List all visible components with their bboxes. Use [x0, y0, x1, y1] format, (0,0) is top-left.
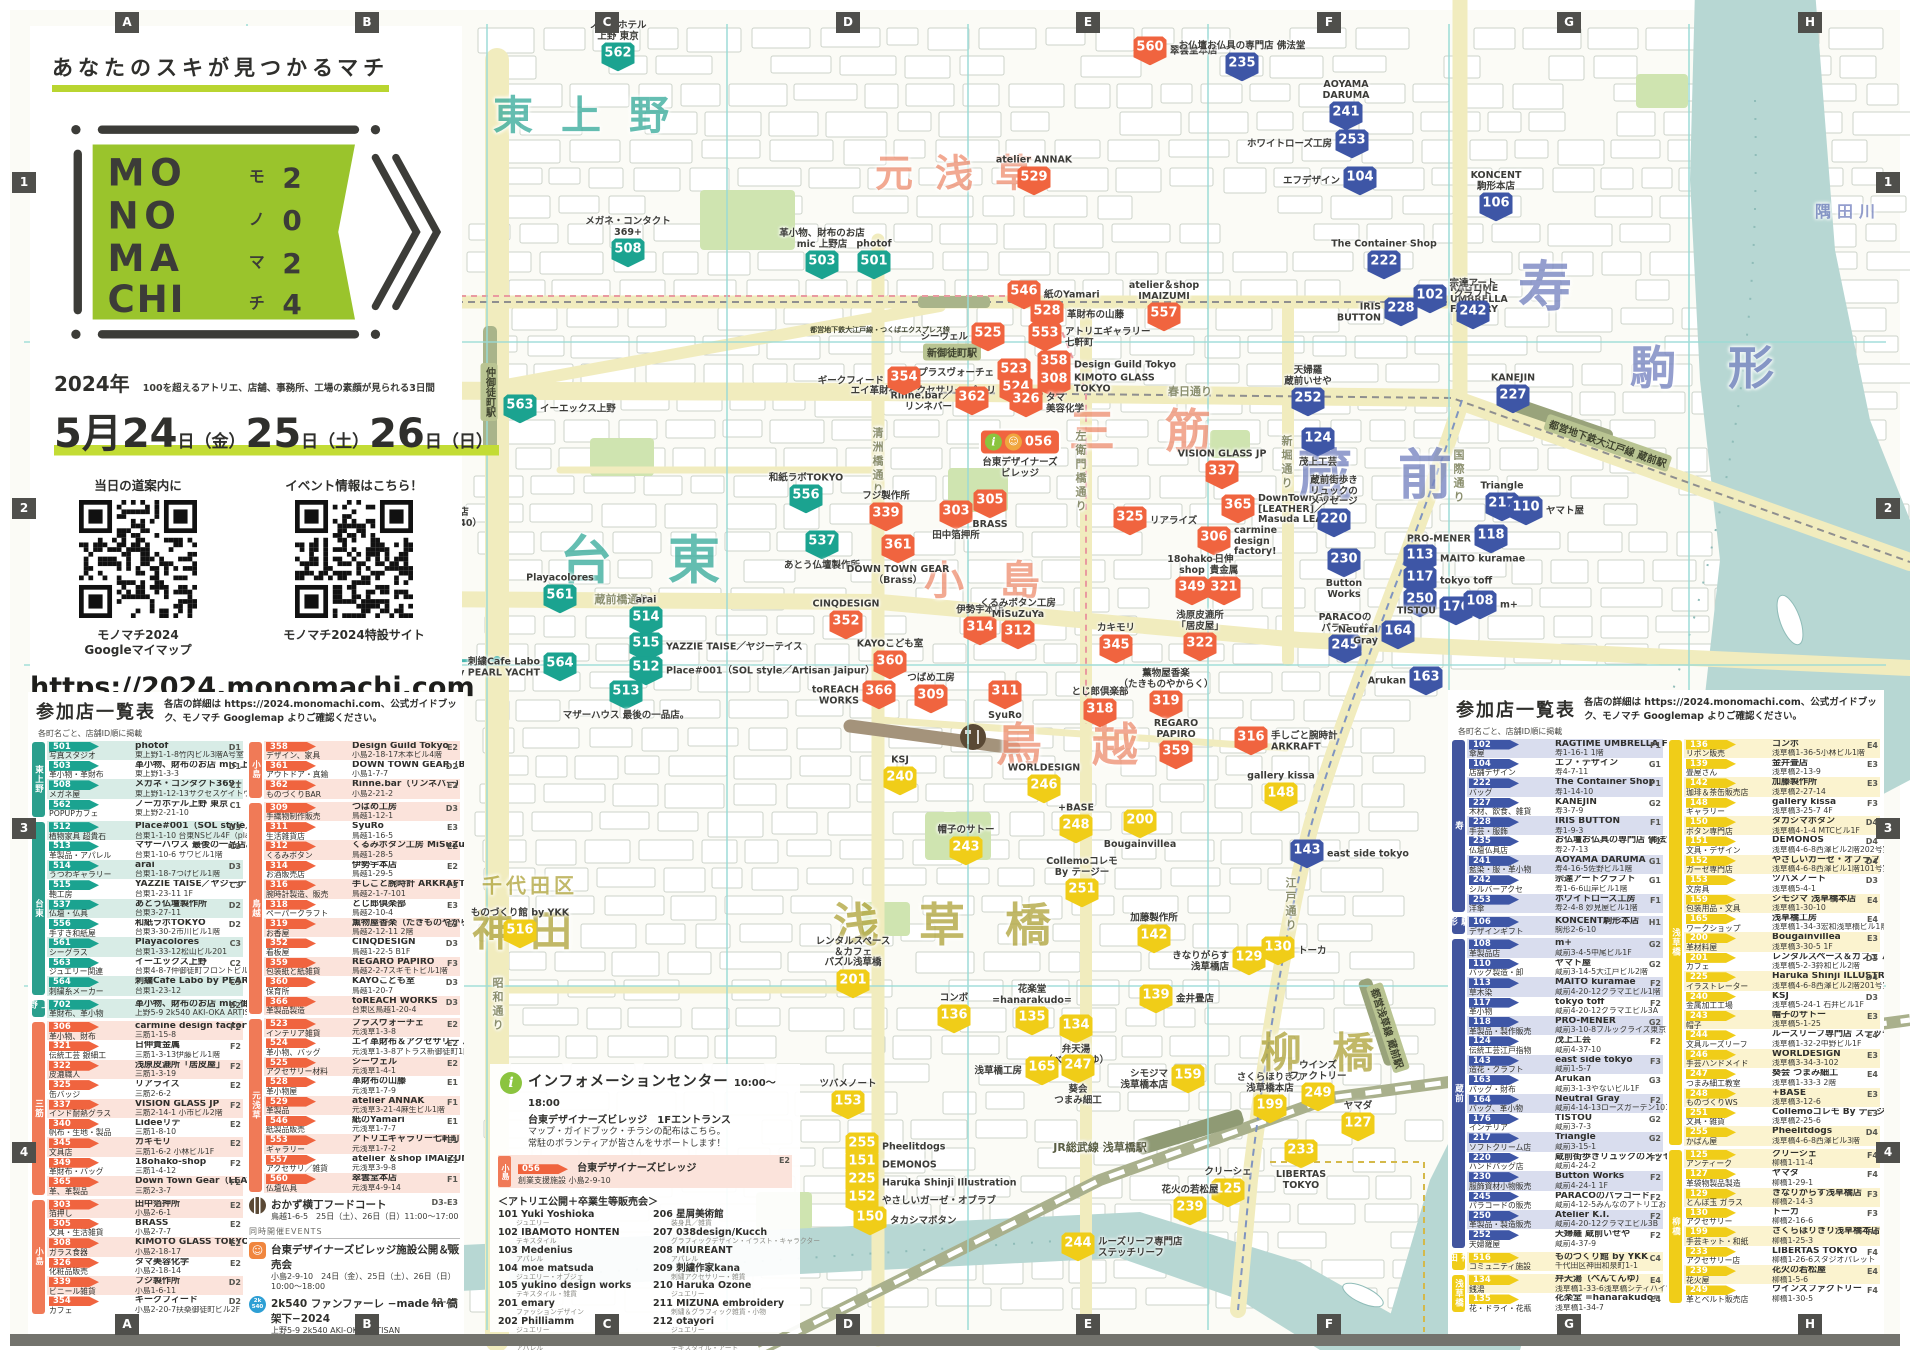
shop-grid-ref: G1 [1649, 760, 1661, 769]
shop-address: 東上野1-3-3 [135, 770, 247, 778]
shop-row-left: 241藍染・服・革小物 [1469, 856, 1553, 874]
shop-address: 浅草橋1-30-10 [1772, 904, 1884, 912]
shop-category: 花・ドライ・花瓶 [1469, 1305, 1553, 1313]
svg-text:ノ: ノ [249, 210, 265, 229]
shop-id-badge: 102 [1469, 740, 1519, 750]
shop-address: 浅草橋1-33-3 2階 [1772, 1079, 1884, 1087]
shop-address: 寿3-7-9 [1555, 807, 1667, 815]
shop-address: 浅草橋2-27-14 [1772, 788, 1884, 796]
shop-row-left: 150ボタン専門店 [1686, 817, 1770, 835]
shop-row-left: 702革財布、革小物 [49, 1000, 133, 1018]
shop-address: 台東3-27-11 [135, 909, 247, 917]
shop-category: 帽子 [1686, 1022, 1770, 1030]
shop-grid-ref: E3 [447, 920, 458, 929]
info-note-2: 常駐のボランティアが皆さんをサポートします！ [528, 1138, 792, 1150]
shop-grid-ref: D2 [229, 920, 241, 929]
shop-row-200: 200革材料屋Bougainvillea浅草橋3-30-5 1FE3 [1684, 932, 1880, 951]
shop-id-badge: 564 [49, 977, 99, 987]
shop-id-badge: 321 [49, 1041, 99, 1051]
shop-row-left: 217ソフトクリーム店 [1469, 1133, 1553, 1151]
shop-address: 浅草橋3-12-6 [1772, 1098, 1884, 1106]
shop-id-badge: 251 [1686, 1108, 1736, 1118]
shop-id-badge: 358 [266, 742, 316, 752]
shop-id-badge: 159 [1686, 895, 1736, 905]
fork-knife-icon [249, 1197, 266, 1214]
shop-id-badge: 252 [1469, 1230, 1519, 1240]
shop-row-318: 318ペーパークラフトとじ郎倶楽部鳥越2-10-4E3 [264, 899, 460, 918]
atelier-category: 刺繍アクセサリー・雑貨 [671, 1274, 798, 1281]
shop-category: コミュニティ施設 [1469, 1263, 1553, 1271]
events-title: 同時開催EVENTS [249, 1226, 460, 1239]
shop-address: 柳橋1-29-1 [1772, 1179, 1884, 1187]
shinokachimachi-station-band [918, 296, 990, 308]
shop-category: カフェ [1686, 963, 1770, 971]
shop-row-left: 325缶バッジ [49, 1080, 133, 1098]
shop-row-240: 240金属加工工場KSJ浅草橋5-24-1 石井ビル1FD3 [1684, 991, 1880, 1010]
shop-category: 花火屋 [1686, 1277, 1770, 1285]
grid-letter-F: F [1317, 12, 1341, 33]
shop-row-left: 337インド耐熱グラス [49, 1100, 133, 1118]
shop-address: 鳥越1-20-7 [352, 987, 464, 995]
shop-group-4: 浅草橋134銭湯弁天湯（べんてんゆ）浅草橋1-33-6浅草橋シティハイツ1階奥E… [1452, 1274, 1663, 1313]
shop-row-left: 501写真スタジオ [49, 742, 133, 760]
atelier-item-201: 201 emaryファッションデザイン [498, 1299, 643, 1316]
shop-row-326: 326化粧品販売タマ美容化学小島2-18-14E2 [47, 1257, 243, 1276]
shop-row-366: 366革製品製造toREACH WORKS台東区鳥越1-20-4D3 [264, 996, 460, 1015]
atelier-item-210: 210 Haruka Ozoneジュエリー [653, 1281, 798, 1298]
shop-row-525: 525アクセサリー材料シーウェル元浅草1-4-1E2 [264, 1057, 460, 1076]
group-name: 台東 [33, 899, 45, 918]
shop-address: 元浅草1-4-1 [352, 1067, 464, 1075]
shop-id-badge: 250 [1469, 1211, 1519, 1221]
shop-category: 革製品製造 [266, 1007, 350, 1015]
shop-row-left: 525アクセサリー材料 [266, 1058, 350, 1076]
shop-row-left: 152ガーゼ専門店 [1686, 856, 1770, 874]
shop-id-badge: 557 [266, 1155, 316, 1165]
shop-id-badge: 220 [1469, 1153, 1519, 1163]
shop-address: 台東1-1-10 台東NSビル4F（place#001） [135, 832, 247, 840]
shop-address: 蔵前3-7-3 [1555, 1123, 1667, 1131]
shop-id-badge: 339 [49, 1277, 99, 1287]
shop-row-252: 252天婦羅屋天婦羅 蔵前いせや蔵前4-37-9F2 [1467, 1229, 1663, 1248]
shop-category: ハンドバッグ店 [1469, 1163, 1553, 1171]
shop-row-245: 245パラコードの販売PARACOのパラコード蔵前4-12-5みんなのアトリエお… [1467, 1191, 1663, 1210]
shop-row-left: 523インテリア雑貨 [266, 1019, 350, 1037]
atelier-category: アパレル [516, 1256, 643, 1263]
shop-grid-ref: D3 [446, 998, 458, 1007]
shop-row-524: 524革小物、バッグエイ革財布＆アクセサリー パハリ元浅草1-3-8アトラス新御… [264, 1037, 460, 1056]
shop-category: 仏壇仏具 [266, 1185, 350, 1193]
shop-category: 紙製品販売 [266, 1126, 350, 1134]
group-spine: 寿 [1452, 740, 1465, 913]
shop-category: 革製品・製作販売 [1469, 1028, 1553, 1036]
shop-row-left: 176インテリア [1469, 1114, 1553, 1132]
shop-row-left: 322皮漉職人 [49, 1061, 133, 1079]
shop-row-left: 319お香屋 [266, 919, 350, 937]
shop-id-badge: 556 [49, 919, 99, 929]
shop-category: 腕時計製造、販売 [266, 891, 350, 899]
shop-id-badge: 106 [1469, 917, 1519, 927]
shop-address: 寿1-9-3 [1555, 827, 1667, 835]
shop-grid-ref: E2 [230, 1120, 241, 1129]
shop-grid-ref: F2 [230, 1042, 241, 1051]
qr-caption-site: イベント情報はこちら！ [259, 475, 449, 494]
shop-grid-ref: D3 [1866, 993, 1878, 1002]
shop-id-badge: 243 [1686, 1011, 1736, 1021]
shop-category: ものづくりBAR [266, 791, 350, 799]
grid-letter-B: B [355, 1314, 379, 1335]
shop-row-left: 117革小物 [1469, 998, 1553, 1016]
shop-category: 革小物、バッグ [266, 1049, 350, 1057]
shop-id-badge: 359 [266, 958, 316, 968]
list-title: 参加店一覧表 [36, 698, 156, 726]
shop-grid-ref: G2 [1649, 940, 1661, 949]
shop-id-badge: 200 [1686, 933, 1736, 943]
shop-id-badge: 117 [1469, 998, 1519, 1008]
event-tagline: あなたのスキが見つかるマチ [52, 52, 389, 92]
shop-category: 手織物制作販売 [266, 813, 350, 821]
grid-letter-A: A [115, 1314, 139, 1335]
atelier-item-207: 207 038design/Kucchグラフィックデザイン・イラスト・キャラクタ… [653, 1228, 798, 1245]
year-label: 2024年 [54, 372, 130, 396]
shop-address: 鳥越1-22-5 B1F [352, 948, 464, 956]
shop-address: 三筋1-6-2 小林ビル1F [135, 1148, 247, 1156]
shop-category: シーグラス [49, 949, 133, 957]
shop-category: 革小物・革財布 [49, 771, 133, 779]
shop-row-104: 104店舗デザインエフ・デザイン寿4-7-11G1 [1467, 758, 1663, 777]
shop-grid-ref: C1 [230, 801, 241, 810]
shop-row-left: 312くるみボタン [266, 841, 350, 859]
shop-id-badge: 230 [1469, 1172, 1519, 1182]
shop-row-553: 553ギャラリーアトリエギャラリー七軒町元浅草1-7-2E1 [264, 1134, 460, 1153]
shop-category: 服飾資材小物販売 [1469, 1183, 1553, 1191]
shop-grid-ref: F2 [230, 1062, 241, 1071]
shop-grid-ref: C3 [230, 842, 241, 851]
shop-row-left: 321伝統工芸 銀細工 [49, 1041, 133, 1059]
shop-category: ものづくりWS [1686, 1099, 1770, 1107]
shop-grid-ref: G2 [1649, 1115, 1661, 1124]
shop-row-left: 556手すき和紙屋 [49, 919, 133, 937]
atelier-category: ジュエリー・オブジェ [516, 1274, 643, 1281]
shop-id-badge: 227 [1469, 798, 1519, 808]
shop-category: バッグ製造・卸 [1469, 969, 1553, 977]
shop-row-322: 322皮漉職人浅原皮漉所「居皮屋」三筋1-3-19F2 [47, 1060, 243, 1079]
shop-row-564: 564刺繍糸メーカー刺繍Cafe Labo by PEARL YACHT台東1-… [47, 976, 243, 995]
shop-grid-ref: C3 [230, 978, 241, 987]
shop-id-badge: 562 [49, 800, 99, 810]
shop-grid-ref: G2 [1649, 799, 1661, 808]
shop-grid-ref: E2 [447, 1020, 458, 1029]
fork-knife-icon [960, 724, 986, 750]
shop-id-badge: 702 [49, 1000, 99, 1010]
shop-category: 藍染・服・革小物 [1469, 866, 1553, 874]
shop-grid-ref: E2 [447, 781, 458, 790]
group-name: 浅草橋 [1670, 928, 1682, 957]
grid-number-4: 4 [1876, 1142, 1900, 1163]
shop-row-left: 245パラコードの販売 [1469, 1192, 1553, 1210]
shop-row-359: 359包装紙と紙雑貨REGARO PAPIRO鳥越2-2-7スギモトビル1階F3 [264, 957, 460, 976]
shop-category: 畳屋さん [1686, 769, 1770, 777]
monomachi-map-page: 東上野元浅草三筋小島鳥越浅草橋柳橋蔵前寿駒形台東千代田区神田隅田川 昭和通り清洲… [0, 0, 1910, 1350]
shop-id-badge: 515 [49, 880, 99, 890]
qr-label-site: モノマチ2024特設サイト [259, 628, 449, 643]
shop-category: 革袋物製品製造 [1686, 1180, 1770, 1188]
shop-category: 箔押し [49, 1210, 133, 1218]
shop-grid-ref: D3 [446, 939, 458, 948]
shop-address: 浅草橋4-6-8西澤ビル3階 [1772, 1137, 1884, 1145]
shop-address: 蔵前4-20-12クラマエビル3A [1555, 1007, 1667, 1015]
shop-row-left: 240金属加工工場 [1686, 992, 1770, 1010]
shop-id-badge: 125 [1686, 1150, 1736, 1160]
qr-code-googlemap [79, 500, 197, 618]
shop-row-523: 523インテリア雑貨プラスヴォーチェ元浅草1-3-8E2 [264, 1018, 460, 1037]
shop-category: 皮漉職人 [49, 1071, 133, 1079]
info-note-1: マップ・ガイドブック・チラシの配布はこちら。 [528, 1126, 792, 1138]
shop-group-0: 東上野501写真スタジオphotof東上野1-1-8竹内ビル3階A号室D1503… [32, 741, 243, 819]
shop-row-230: 230服飾資材小物販売Button Works蔵前4-24-1 1FF2 [1467, 1171, 1663, 1190]
shop-row-239: 239花火屋花火の若松屋柳橋1-5-6E4 [1684, 1265, 1880, 1284]
shop-id-badge: 143 [1469, 1056, 1519, 1066]
shop-row-222: 222バッグThe Container Shop寿1-14-10F1 [1467, 777, 1663, 796]
shop-grid-ref: E2 [230, 1081, 241, 1090]
shop-address: 鳥越2-10-4 [352, 909, 464, 917]
shop-row-241: 241藍染・服・革小物AOYAMA DARUMA寿4-16-5佐野ビル1階G1 [1467, 855, 1663, 874]
shop-id-badge: 306 [49, 1022, 99, 1032]
right-list-column-2: 浅草橋136リボン販売コンボ浅草橋1-36-5小林ビル1階E4139畳屋さん金井… [1669, 739, 1880, 1316]
shop-category: 包装紙と紙雑貨 [266, 968, 350, 976]
shop-id-badge: 325 [49, 1080, 99, 1090]
shop-category: アクセサリー [1686, 1218, 1770, 1226]
shop-row-left: 366革製品製造 [266, 997, 350, 1015]
shop-row-246: 246手芸ハンドメイドWORLDESIGN浅草橋3-34-3-102E3 [1684, 1049, 1880, 1068]
shop-row-508: 508メガネ屋メガネ・コンタクト369+東上野1-12-13サクセスゲイトウェイ… [47, 779, 243, 798]
shop-category: 伝統工芸 銀細工 [49, 1052, 133, 1060]
shop-grid-ref: E3 [1867, 934, 1878, 943]
group-spine: 蔵前 [1452, 939, 1465, 1247]
shop-address: 駒形2-6-10 [1555, 926, 1667, 934]
shop-address: 浅草橋5-4-1 [1772, 885, 1884, 893]
shop-row-left: 361アウトドア・真鍮 [266, 761, 350, 779]
shop-grid-ref: E3 [1867, 1051, 1878, 1060]
shop-address: 蔵前3-1-3やないビル1F [1555, 1085, 1667, 1093]
shop-row-243: 243帽子帽子のサトー浅草橋5-1-25E3 [1684, 1010, 1880, 1029]
grid-letter-C: C [595, 12, 619, 33]
shop-address: 浅草橋3-30-5 1F [1772, 943, 1884, 951]
svg-text:2: 2 [282, 247, 301, 280]
shop-group-3: 神田516コミュニティ施設ものづくり館 by YKK千代田区神田和泉町1-1C4 [1452, 1252, 1663, 1271]
monomachi-logo: MO NO MA CHI モ ノ マ チ 2 0 2 4 [48, 106, 448, 358]
shop-id-badge: 311 [266, 822, 316, 832]
shop-row-left: 165ワークショップ [1686, 914, 1770, 932]
shop-category: 革財布、革小物 [49, 1010, 133, 1018]
shop-category: 造花・クラフト [1469, 1066, 1553, 1074]
shop-grid-ref: E2 [447, 1059, 458, 1068]
shop-row-left: 546紙製品販売 [266, 1116, 350, 1134]
shop-row-247: 247つまみ細工教室葵会 つまみ細工浅草橋1-33-3 2階E4 [1684, 1068, 1880, 1087]
shop-row-135: 135花・ドライ・花瓶花楽堂 =hanarakudo=浅草橋1-34-7E4 [1467, 1293, 1663, 1312]
shop-address: 浅草橋1-33-6浅草橋シティハイツ1階奥 [1555, 1285, 1667, 1293]
shop-address: 浅草橋4-6-8西澤ビル2階201号室 [1772, 982, 1884, 990]
shop-row-left: 244文具ルーズリーフ [1686, 1030, 1770, 1048]
shop-id-badge: 222 [1469, 778, 1519, 788]
shop-address: 浅草橋1-36-5小林ビル1階 [1772, 749, 1884, 757]
shop-category: 草木染 [1469, 989, 1553, 997]
shop-row-102: 102傘屋RAGTIME UMBRELLA FACTORY寿1-16-1 1階F… [1467, 739, 1663, 758]
shop-row-339: 339ビニール雑貨フジ製作所小島1-6-11D2 [47, 1276, 243, 1295]
shop-category: ペーパークラフト [266, 910, 350, 918]
shop-id-badge: 244 [1686, 1030, 1736, 1040]
shop-address: 柳橋2-14-3 [1772, 1198, 1884, 1206]
shop-grid-ref: F2 [230, 1023, 241, 1032]
shop-id-badge: 349 [49, 1158, 99, 1168]
shop-category: 革小物、財布 [49, 1033, 133, 1041]
shop-row-left: 562POPUPカフェ [49, 800, 133, 818]
group-name: 三筋 [33, 1099, 45, 1118]
info-location: 台東デザイナーズビレッジ 1Fエントランス [528, 1111, 792, 1126]
shop-row-left: 248ものづくりWS [1686, 1089, 1770, 1107]
shop-category: デザイン、家具 [266, 752, 350, 760]
svg-text:CHI: CHI [108, 277, 186, 321]
shop-row-199: 199手芸キット・和紙さくらほりきり浅草橋本店柳橋1-25-3F4 [1684, 1226, 1880, 1245]
shop-id-badge: 345 [49, 1138, 99, 1148]
shop-grid-ref: F3 [1867, 1209, 1878, 1218]
shop-row-556: 556手すき和紙屋和紙ラボTOKYO台東3-30-2市川ビル1階D2 [47, 918, 243, 937]
shop-id-badge: 139 [1686, 759, 1736, 769]
shop-id-badge: 242 [1469, 875, 1519, 885]
shop-row-left: 516コミュニティ施設 [1469, 1253, 1553, 1271]
shop-address: 蔵前4-37-10 [1555, 1046, 1667, 1054]
shop-id-badge: 529 [266, 1097, 316, 1107]
shop-address: 浅草橋1-34-7 [1555, 1304, 1667, 1312]
shop-category: インテリア雑貨 [266, 1030, 350, 1038]
shop-category: アクセサリー材料 [266, 1068, 350, 1076]
atelier-category: ジュエリー [671, 1291, 798, 1298]
shop-row-left: 306革小物、財布 [49, 1022, 133, 1040]
shop-grid-ref: D3 [229, 862, 241, 871]
shop-row-left: 153文房具 [1686, 875, 1770, 893]
shop-row-left: 252天婦羅屋 [1469, 1230, 1553, 1248]
shop-row-left: 142珈琲＆茶缶販売店 [1686, 778, 1770, 796]
shop-category: 木材、飲食、雑貨 [1469, 808, 1553, 816]
shop-row-left: 564刺繍糸メーカー [49, 977, 133, 995]
shop-address: 蔵前3-10-8ブルックライズ東京1F [1555, 1026, 1667, 1034]
shop-address: 蔵前3-14-5大江戸ビル2階 [1555, 968, 1667, 976]
group-name: 元浅草 [250, 1091, 262, 1120]
shop-category: 看板屋 [266, 949, 350, 957]
shop-list-panel-left: 参加店一覧表 各店の詳細は https://2024.monomachi.com… [28, 692, 464, 1336]
shop-row-left: 316腕時計製造、販売 [266, 880, 350, 898]
shop-id-badge: 308 [49, 1238, 99, 1248]
shop-row-233: 233アクセサリー店LIBERTAS TOKYO柳橋1-26-6スタジオパレット… [1684, 1246, 1880, 1265]
svg-text:0: 0 [282, 204, 301, 237]
shop-row-217: 217ソフトクリーム店Triangle蔵前3-15-1G2 [1467, 1132, 1663, 1151]
shop-row-365: 365革、革製品Down Town Gear（LEATHER）／Masuda L… [47, 1176, 243, 1195]
shop-category: バッグ [1469, 789, 1553, 797]
shop-grid-ref: F2 [230, 1159, 241, 1168]
shop-row-702: 702革財布、革小物革小物、財布のお店 mic 御徒町店上野5-9 2k540 … [47, 999, 243, 1018]
grid-number-1: 1 [1876, 172, 1900, 193]
shop-row-left: 134銭湯 [1469, 1275, 1553, 1293]
shop-address: 小島2-21-2 [352, 790, 464, 798]
shop-grid-ref: D3 [1866, 954, 1878, 963]
shop-group-1: 台東512植物家具 超貴石Place#001（SOL style／Artisan… [32, 821, 243, 996]
shop-category: 天婦羅屋 [1469, 1241, 1553, 1249]
shop-grid-ref: E4 [1867, 1031, 1878, 1040]
shop-id-badge: 326 [49, 1258, 99, 1268]
shop-id-badge: 134 [1469, 1275, 1519, 1285]
left-list-column-1: 東上野501写真スタジオphotof東上野1-1-8竹内ビル3階A号室D1503… [32, 741, 243, 1350]
shop-id-badge: 340 [49, 1119, 99, 1129]
shop-row-201: 201カフェレンタルスペース＆カフェ パズル浅草橋浅草橋5-2-3鈴和ビル2階D… [1684, 952, 1880, 971]
shop-grid-ref: F1 [447, 1175, 458, 1184]
date-line: 5月24日（金）25日（土）26日（日） [54, 401, 499, 459]
shop-row-left: 239花火屋 [1686, 1266, 1770, 1284]
shop-grid-ref: D2 [229, 1278, 241, 1287]
shop-address: 蔵前3-15-1 [1555, 1143, 1667, 1151]
shop-row-left: 249革とベルト販売店 [1686, 1285, 1770, 1303]
shop-row-562: 562POPUPカフェノーガホテル上野 東京東上野2-21-10C1 [47, 799, 243, 818]
shop-grid-ref: D4 [1866, 973, 1878, 982]
shop-id-badge: 176 [1469, 1114, 1519, 1124]
shop-category: 鞄工房 [49, 891, 133, 899]
shop-id-badge: 129 [1686, 1189, 1736, 1199]
shop-category: イラストレーター [1686, 983, 1770, 991]
grid-number-2: 2 [1876, 498, 1900, 519]
shop-row-142: 142珈琲＆茶缶販売店加藤製作所浅草橋2-27-14E3 [1684, 777, 1880, 796]
shop-id-badge: 248 [1686, 1089, 1736, 1099]
shop-grid-ref: E3 [1867, 779, 1878, 788]
group-spine: 小島 [249, 742, 262, 798]
shop-grid-ref: E4 [1867, 1267, 1878, 1276]
shop-id-badge: 148 [1686, 798, 1736, 808]
shop-category: デザインギフト [1469, 928, 1553, 936]
shop-id-badge: 523 [266, 1019, 316, 1029]
shop-address: 小島2-6-1 [135, 1209, 247, 1217]
shop-row-left: 303箔押し [49, 1200, 133, 1218]
shop-category: 帆布・生地・製品 [49, 1129, 133, 1137]
shop-address: 台東4-8-7仲御徒町フロントビル8F [135, 967, 247, 975]
shop-id-badge: 113 [1469, 978, 1519, 988]
shop-grid-ref: D4 [1866, 1128, 1878, 1137]
shop-id-badge: 322 [49, 1061, 99, 1071]
shop-grid-ref: D3 [446, 978, 458, 987]
atelier-category: アパレル [671, 1256, 798, 1263]
shop-list-panel-right: 参加店一覧表 各店の詳細は https://2024.monomachi.com… [1448, 690, 1884, 1336]
shop-category: 手芸ハンドメイド [1686, 1060, 1770, 1068]
shop-id-badge: 165 [1686, 914, 1736, 924]
shop-row-left: 136リボン販売 [1686, 740, 1770, 758]
list-title: 参加店一覧表 [1456, 696, 1576, 724]
shop-id-badge: 142 [1686, 778, 1736, 788]
shop-group-1: 駒形106デザインギフトKONCENT駒形本店駒形2-6-10H1 [1452, 916, 1663, 935]
shop-row-354: 354カフェギークフィード小島2-20-7扶桑御徒町ビル2FD2 [47, 1295, 243, 1314]
shop-category: くるみボタン [266, 852, 350, 860]
shop-address: 柳橋1-26-6スタジオパレット [1772, 1256, 1884, 1264]
shop-category: 生活雑貨店 [266, 833, 350, 841]
shop-id-badge: 528 [266, 1077, 316, 1087]
shop-address: 小島2-18-14 [135, 1267, 247, 1275]
shop-row-left: 557アクセサリ／雑貨 [266, 1155, 350, 1173]
shop-group-1: 柳橋125アンティーククリーシェ柳橋1-11-4F4127革袋物製品製造ヤマダ柳… [1669, 1149, 1880, 1304]
svg-text:マ: マ [249, 252, 265, 271]
shop-row-left: 129とんぼ玉 ガラス [1686, 1189, 1770, 1207]
shop-category: 化粧品販売 [49, 1268, 133, 1276]
shop-address: 上野5-9 2k540 AKI-OKA ARTISAN [135, 1009, 247, 1017]
shop-id-badge: 361 [266, 761, 316, 771]
shop-grid-ref: E2 [447, 862, 458, 871]
shop-row-561: 561シーグラスPlayacolores台東1-33-12松山ビル201C3 [47, 937, 243, 956]
shop-address: 蔵前4-37-9 [1555, 1240, 1667, 1248]
